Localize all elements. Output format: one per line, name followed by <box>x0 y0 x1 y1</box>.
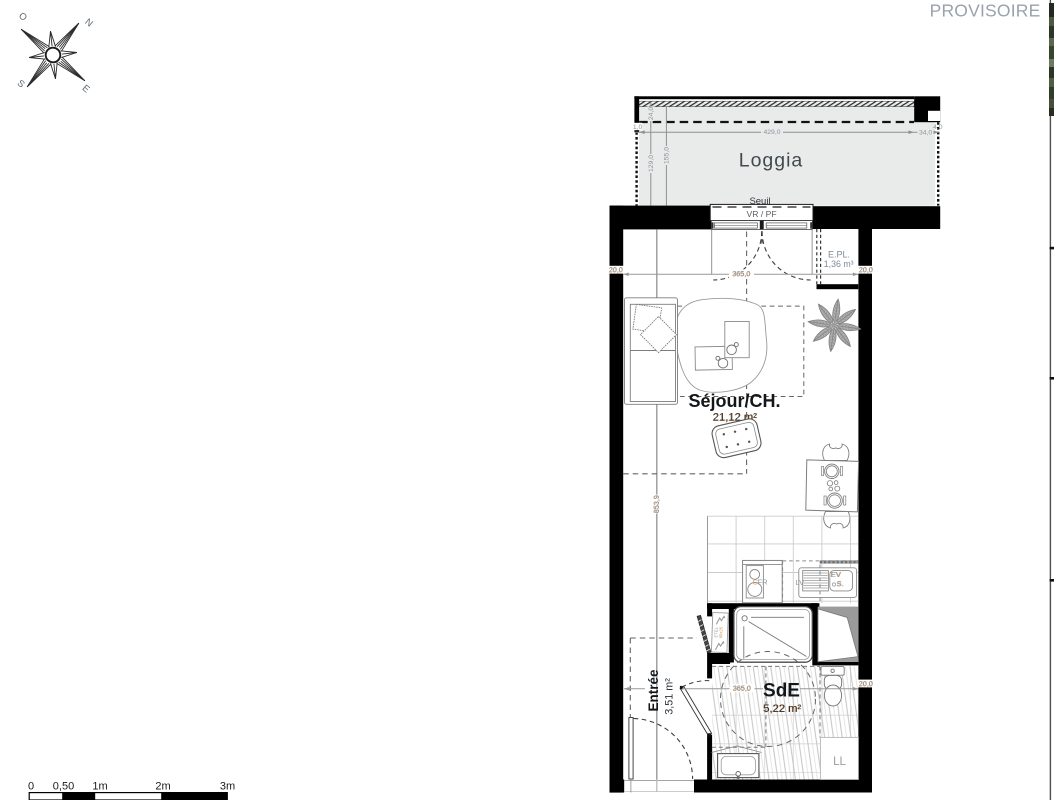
svg-text:20,0: 20,0 <box>859 265 873 274</box>
svg-text:20,0: 20,0 <box>859 679 873 688</box>
svg-text:Loggia: Loggia <box>739 150 804 172</box>
svg-text:3m: 3m <box>220 781 235 793</box>
svg-text:34,0: 34,0 <box>919 129 932 136</box>
svg-text:EV: EV <box>831 570 842 579</box>
svg-text:4,0: 4,0 <box>933 124 943 131</box>
svg-text:1,36 m³: 1,36 m³ <box>824 259 854 269</box>
svg-text:60x25: 60x25 <box>718 626 723 638</box>
svg-text:0,50: 0,50 <box>53 781 74 793</box>
svg-text:FR: FR <box>758 577 769 586</box>
svg-text:853,9: 853,9 <box>652 495 661 513</box>
svg-text:VR / PF: VR / PF <box>747 209 777 219</box>
svg-text:429,0: 429,0 <box>763 129 780 136</box>
svg-text:0: 0 <box>28 781 34 793</box>
svg-text:SdE: SdE <box>763 681 800 702</box>
svg-text:365,0: 365,0 <box>733 269 751 278</box>
svg-text:155,0: 155,0 <box>664 147 671 164</box>
svg-text:S.: S. <box>837 579 844 588</box>
svg-text:Entrée: Entrée <box>646 669 661 712</box>
svg-text:LL: LL <box>833 756 846 768</box>
svg-text:129,0: 129,0 <box>648 155 655 172</box>
svg-text:Séjour/CH.: Séjour/CH. <box>688 391 780 411</box>
svg-text:24,0: 24,0 <box>648 107 655 120</box>
svg-text:365,0: 365,0 <box>733 684 751 693</box>
svg-text:2m: 2m <box>155 781 170 793</box>
svg-text:3,51 m²: 3,51 m² <box>664 678 676 715</box>
svg-text:PROVISOIRE: PROVISOIRE <box>930 1 1041 21</box>
svg-text:1,0: 1,0 <box>633 124 643 131</box>
svg-text:E.PL.: E.PL. <box>828 249 850 259</box>
svg-text:20,0: 20,0 <box>609 265 623 274</box>
svg-text:5,22 m²: 5,22 m² <box>763 703 801 715</box>
svg-text:1m: 1m <box>92 781 107 793</box>
svg-text:LV: LV <box>796 578 806 587</box>
